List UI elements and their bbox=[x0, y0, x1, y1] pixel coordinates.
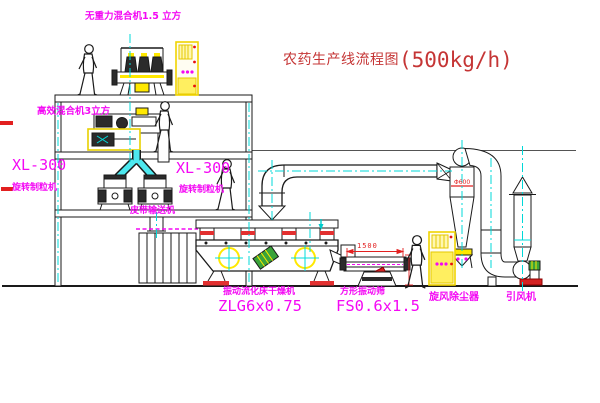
label-screen-model: FS0.6x1.5 bbox=[336, 299, 420, 315]
label-top-mixer: 无重力混合机1.5 立方 bbox=[85, 12, 181, 22]
control-cabinet-2 bbox=[429, 232, 455, 285]
title-text: 农药生产线流程图 bbox=[283, 52, 399, 68]
cad-flow-diagram: 无重力混合机1.5 立方 农药生产线流程图(500kg/h) 高效混合机3立方 … bbox=[0, 0, 600, 403]
granulators bbox=[98, 175, 172, 210]
control-cabinet-1 bbox=[176, 42, 198, 95]
label-screen-name: 方形振动筛 bbox=[340, 288, 385, 297]
induced-draft-fan bbox=[513, 261, 542, 285]
fluid-bed-dryer bbox=[196, 219, 345, 286]
vibrating-screen bbox=[340, 245, 413, 286]
label-granulator-right-model: XL-300 bbox=[176, 161, 230, 176]
diagram-title: 农药生产线流程图(500kg/h) bbox=[283, 50, 513, 71]
gravity-free-mixer bbox=[112, 48, 172, 95]
exhaust-duct bbox=[259, 163, 452, 220]
label-dryer-name: 振动流化床干燥机 bbox=[223, 288, 295, 297]
label-dryer-model: ZLG6x0.75 bbox=[218, 299, 302, 315]
person-top-floor bbox=[78, 45, 98, 95]
dimension-screen-length: 1500 bbox=[357, 243, 378, 250]
label-granulator-left-name: 旋转制粒机 bbox=[12, 184, 57, 193]
label-mixer-2f: 高效混合机3立方 bbox=[37, 107, 110, 117]
label-granulator-right-name: 旋转制粒机 bbox=[179, 186, 224, 195]
label-cyclone: 旋风除尘器 bbox=[429, 293, 479, 303]
dimension-cyclone: Φ600 bbox=[454, 180, 470, 186]
title-capacity: (500kg/h) bbox=[399, 48, 513, 72]
dryer-bellows bbox=[200, 228, 334, 240]
label-granulator-left-model: XL-300 bbox=[12, 158, 66, 173]
label-fan: 引风机 bbox=[506, 293, 536, 303]
belt-conveyor bbox=[136, 229, 198, 283]
cyclone-separator bbox=[450, 148, 518, 286]
label-belt-conveyor: 皮带输送机 bbox=[130, 207, 175, 216]
